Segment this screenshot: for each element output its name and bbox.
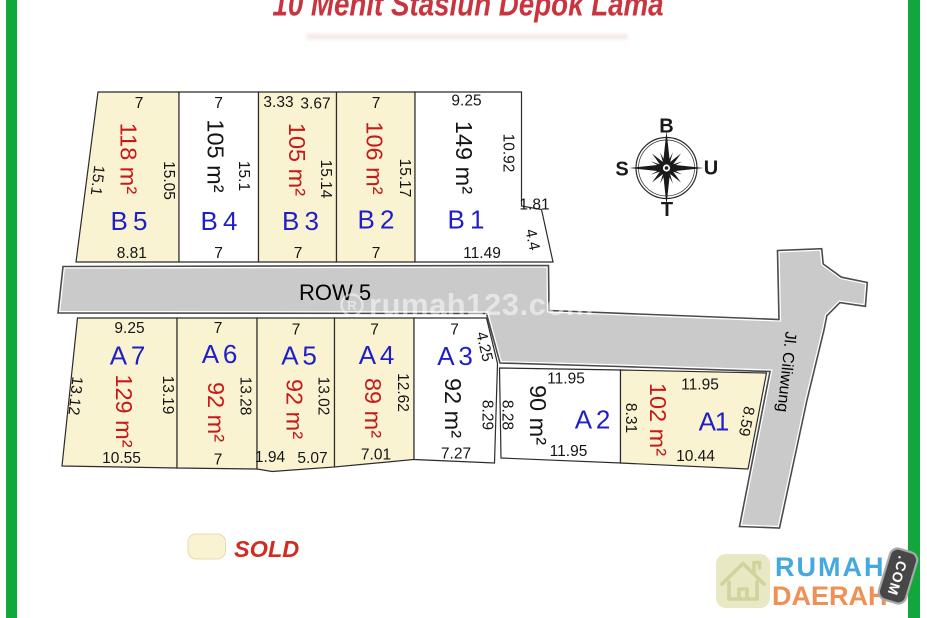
svg-text:S: S (615, 159, 628, 181)
svg-text:B 2: B 2 (357, 205, 394, 235)
svg-text:B 3: B 3 (282, 206, 319, 236)
svg-text:10.44: 10.44 (676, 448, 715, 465)
svg-text:A 5: A 5 (281, 341, 316, 371)
svg-text:7: 7 (372, 95, 381, 112)
svg-text:11.49: 11.49 (463, 245, 501, 262)
svg-text:T: T (661, 199, 673, 221)
svg-text:106 m²: 106 m² (362, 121, 388, 194)
svg-text:7.01: 7.01 (361, 447, 391, 464)
svg-text:R: R (347, 298, 357, 313)
svg-text:8.81: 8.81 (117, 245, 147, 262)
svg-text:105 m²: 105 m² (284, 123, 310, 196)
svg-text:118 m²: 118 m² (116, 123, 142, 195)
svg-text:5.07: 5.07 (297, 450, 327, 467)
svg-text:7: 7 (135, 95, 144, 112)
svg-text:A 2: A 2 (575, 405, 610, 435)
svg-text:15.1: 15.1 (235, 161, 252, 191)
svg-text:7: 7 (294, 245, 303, 262)
svg-text:1.81: 1.81 (519, 197, 549, 214)
svg-text:A 3: A 3 (437, 341, 472, 371)
svg-text:11.95: 11.95 (550, 443, 588, 460)
svg-text:7: 7 (214, 320, 223, 337)
svg-text:15.14: 15.14 (317, 160, 334, 199)
svg-text:92 m²: 92 m² (440, 378, 466, 438)
svg-text:10.55: 10.55 (102, 450, 141, 467)
svg-text:10 Menit Stasiun Depok Lama: 10 Menit Stasiun Depok Lama (272, 0, 663, 23)
svg-text:SOLD: SOLD (234, 536, 299, 562)
svg-text:7: 7 (214, 95, 223, 112)
svg-text:11.95: 11.95 (681, 377, 719, 394)
svg-text:7: 7 (214, 245, 223, 262)
svg-text:A1: A1 (699, 407, 729, 437)
svg-text:15.05: 15.05 (160, 161, 177, 200)
svg-text:7.27: 7.27 (441, 446, 471, 463)
svg-text:9.25: 9.25 (114, 320, 144, 337)
svg-text:DAERAH: DAERAH (772, 581, 888, 611)
svg-text:7: 7 (450, 322, 459, 339)
svg-text:15.17: 15.17 (396, 159, 413, 198)
svg-text:B: B (659, 116, 673, 138)
svg-text:7: 7 (214, 452, 223, 469)
svg-text:13.28: 13.28 (237, 377, 254, 416)
svg-text:B 4: B 4 (200, 206, 237, 236)
svg-text:92 m²: 92 m² (203, 382, 229, 442)
svg-text:102 m²: 102 m² (645, 383, 671, 456)
svg-text:8.28: 8.28 (499, 400, 516, 430)
svg-text:B 1: B 1 (447, 205, 484, 235)
svg-text:92 m²: 92 m² (282, 379, 308, 439)
svg-text:13.12: 13.12 (65, 376, 86, 416)
svg-text:90 m²: 90 m² (525, 385, 551, 445)
svg-text:11.95: 11.95 (547, 371, 585, 388)
svg-text:13.19: 13.19 (159, 376, 176, 415)
svg-text:12.62: 12.62 (394, 373, 411, 412)
svg-text:3.67: 3.67 (300, 96, 330, 113)
svg-text:8.31: 8.31 (622, 403, 639, 433)
svg-text:9.25: 9.25 (451, 93, 481, 110)
svg-text:7: 7 (370, 322, 379, 339)
svg-text:ROW 5: ROW 5 (299, 280, 371, 305)
svg-text:3.33: 3.33 (263, 94, 293, 111)
svg-text:B 5: B 5 (110, 206, 147, 236)
svg-text:8.29: 8.29 (479, 400, 496, 430)
svg-text:7: 7 (292, 322, 301, 339)
svg-text:U: U (704, 158, 718, 180)
svg-text:A 4: A 4 (359, 340, 394, 370)
svg-text:129 m²: 129 m² (111, 374, 137, 447)
svg-text:105 m²: 105 m² (203, 119, 229, 192)
svg-text:1.94: 1.94 (255, 449, 286, 466)
svg-text:10.92: 10.92 (500, 134, 517, 173)
svg-text:13.02: 13.02 (315, 377, 332, 416)
svg-text:149 m²: 149 m² (451, 121, 477, 194)
svg-text:7: 7 (372, 245, 381, 262)
svg-text:A 6: A 6 (202, 339, 237, 369)
svg-text:rumah123.com: rumah123.com (369, 287, 594, 322)
svg-text:89 m²: 89 m² (360, 378, 386, 438)
svg-text:A 7: A 7 (110, 341, 145, 371)
svg-text:RUMAH: RUMAH (775, 552, 886, 582)
